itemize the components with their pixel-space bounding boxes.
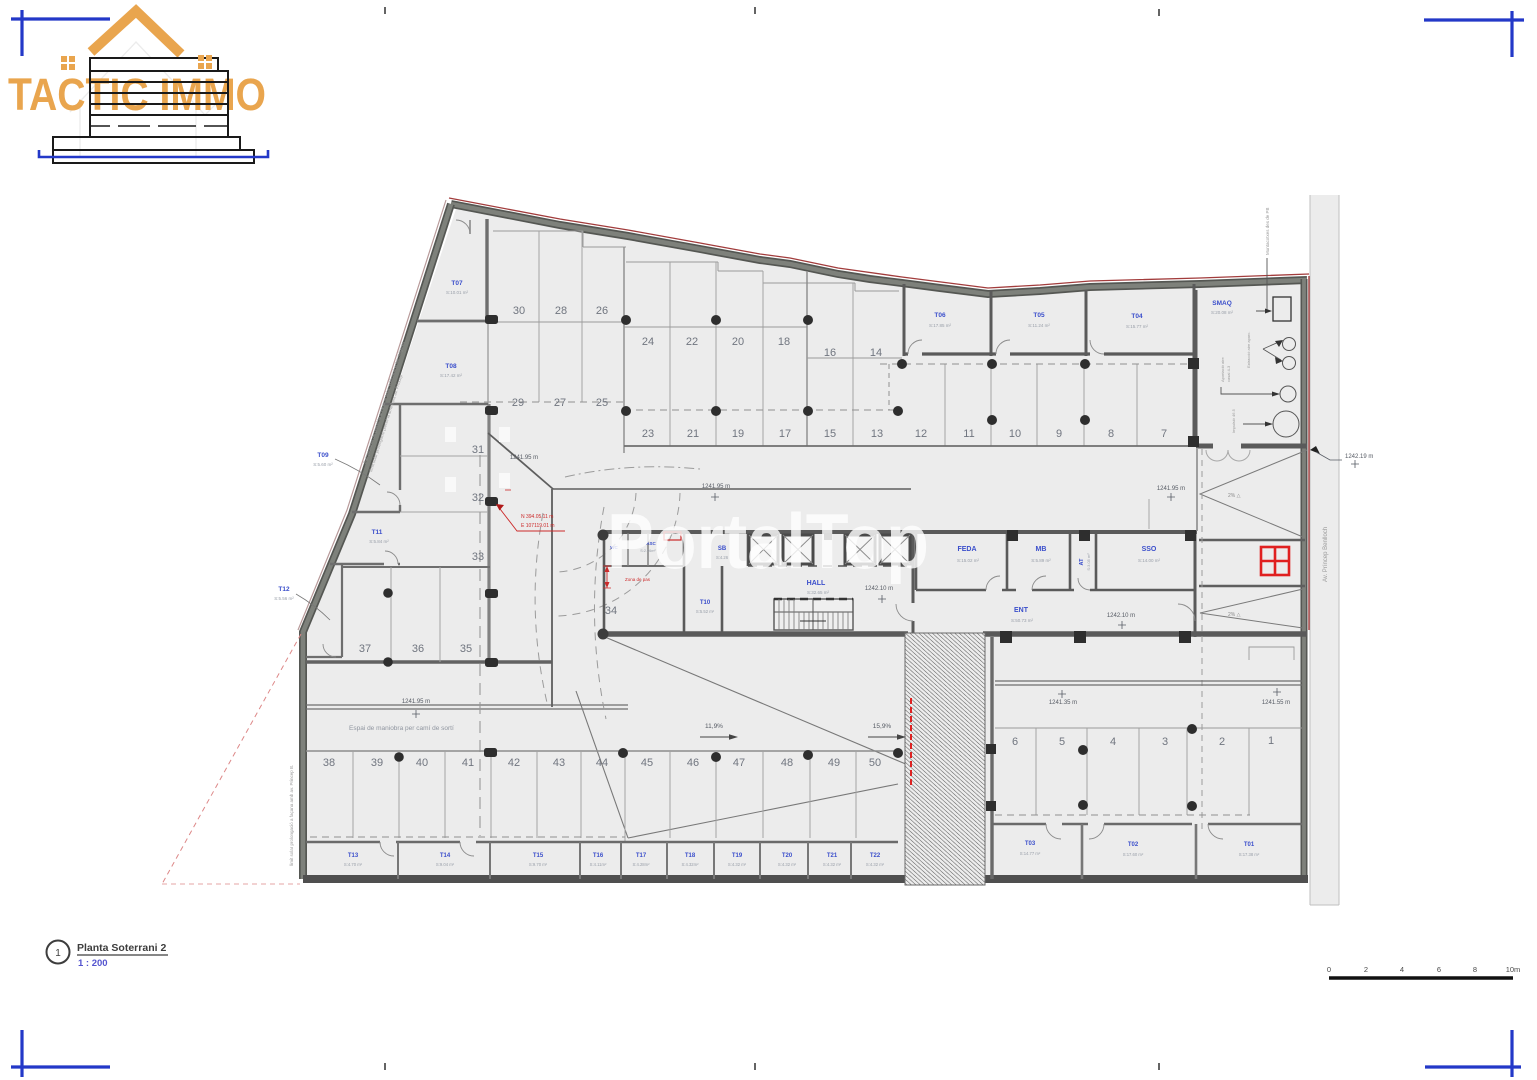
svg-text:50: 50 xyxy=(869,757,881,769)
svg-text:T12: T12 xyxy=(278,586,290,593)
svg-text:1242.10 m: 1242.10 m xyxy=(1107,613,1135,619)
svg-text:S:15.02 m²: S:15.02 m² xyxy=(957,558,980,563)
svg-text:S:5.60 m²: S:5.60 m² xyxy=(313,462,333,467)
svg-text:1242.10 m: 1242.10 m xyxy=(865,586,893,592)
svg-text:S:4.32 m²: S:4.32 m² xyxy=(778,862,797,867)
svg-text:Extracció aire aparc.: Extracció aire aparc. xyxy=(1246,332,1251,368)
svg-text:S:4.28m²: S:4.28m² xyxy=(633,862,651,867)
svg-text:1242.19 m: 1242.19 m xyxy=(1345,454,1373,460)
svg-text:1241.55 m: 1241.55 m xyxy=(1262,700,1290,706)
svg-text:Av. Príncep Benlloch: Av. Príncep Benlloch xyxy=(1323,527,1329,582)
svg-text:6: 6 xyxy=(1437,965,1441,974)
svg-text:S:4.32 m²: S:4.32 m² xyxy=(728,862,747,867)
svg-text:18: 18 xyxy=(778,336,790,348)
svg-text:43: 43 xyxy=(553,757,565,769)
svg-text:S:4.70 m²: S:4.70 m² xyxy=(344,862,363,867)
svg-text:Aportació aire: Aportació aire xyxy=(1220,357,1225,382)
svg-text:S:17.42 m²: S:17.42 m² xyxy=(440,373,463,378)
svg-text:1241.95 m: 1241.95 m xyxy=(702,484,730,490)
svg-text:9: 9 xyxy=(1056,428,1062,440)
svg-text:1241.95 m: 1241.95 m xyxy=(510,455,538,461)
svg-text:T16: T16 xyxy=(593,853,604,859)
svg-text:1241.35 m: 1241.35 m xyxy=(1049,700,1077,706)
svg-text:2: 2 xyxy=(1219,736,1225,748)
svg-text:15: 15 xyxy=(824,428,836,440)
svg-text:35: 35 xyxy=(460,643,472,655)
svg-text:S:5.56 m²: S:5.56 m² xyxy=(274,596,294,601)
svg-text:T01: T01 xyxy=(1244,842,1255,848)
svg-text:1: 1 xyxy=(55,948,61,959)
svg-text:48: 48 xyxy=(781,757,793,769)
svg-text:44: 44 xyxy=(596,757,608,769)
svg-text:1241.95 m: 1241.95 m xyxy=(402,699,430,705)
svg-text:S:3.05 m²: S:3.05 m² xyxy=(1086,553,1091,571)
svg-text:0: 0 xyxy=(1327,965,1331,974)
svg-text:PortalTop: PortalTop xyxy=(607,497,929,585)
svg-text:8: 8 xyxy=(1473,965,1477,974)
svg-text:T09: T09 xyxy=(317,452,329,459)
svg-text:2% △: 2% △ xyxy=(1228,612,1241,618)
svg-text:T04: T04 xyxy=(1131,313,1143,320)
svg-text:32: 32 xyxy=(472,492,484,504)
svg-text:20: 20 xyxy=(732,336,744,348)
svg-text:T13: T13 xyxy=(348,853,359,859)
svg-text:21: 21 xyxy=(687,428,699,440)
svg-text:2% △: 2% △ xyxy=(1228,493,1241,499)
svg-text:1: 1 xyxy=(1268,735,1274,747)
svg-text:14: 14 xyxy=(870,347,882,359)
svg-text:29: 29 xyxy=(512,397,524,409)
svg-text:Espai de maniobra per camí de: Espai de maniobra per camí de sortí xyxy=(349,725,454,732)
svg-text:SSO: SSO xyxy=(1142,546,1157,553)
svg-text:Impulsió 46.5: Impulsió 46.5 xyxy=(1231,408,1236,433)
svg-text:S:14.77 m²: S:14.77 m² xyxy=(1020,851,1041,856)
svg-text:19: 19 xyxy=(732,428,744,440)
svg-text:T06: T06 xyxy=(934,312,946,319)
svg-text:46: 46 xyxy=(687,757,699,769)
svg-text:33: 33 xyxy=(472,551,484,563)
svg-text:S:5.52 m²: S:5.52 m² xyxy=(696,609,715,614)
svg-text:T05: T05 xyxy=(1033,312,1045,319)
svg-text:S:11.24 m²: S:11.24 m² xyxy=(1028,323,1050,328)
svg-text:MB: MB xyxy=(1036,546,1047,553)
svg-text:E 107119.01 m: E 107119.01 m xyxy=(521,523,555,529)
svg-text:S:9.04 m²: S:9.04 m² xyxy=(436,862,455,867)
svg-text:ENT: ENT xyxy=(1014,607,1029,614)
svg-text:T17: T17 xyxy=(636,853,647,859)
svg-text:47: 47 xyxy=(733,757,745,769)
svg-text:3: 3 xyxy=(1162,736,1168,748)
svg-text:S:50.73 m²: S:50.73 m² xyxy=(1011,618,1034,623)
svg-text:T14: T14 xyxy=(440,853,451,859)
svg-text:42: 42 xyxy=(508,757,520,769)
svg-text:S:10.01 m²: S:10.01 m² xyxy=(446,290,469,295)
svg-text:11: 11 xyxy=(963,428,974,440)
svg-text:AT: AT xyxy=(1079,558,1085,566)
svg-text:39: 39 xyxy=(371,757,383,769)
svg-text:SMAQ: SMAQ xyxy=(1212,300,1232,307)
svg-text:34: 34 xyxy=(605,605,617,617)
svg-text:T02: T02 xyxy=(1128,842,1139,848)
svg-text:T11: T11 xyxy=(372,529,383,536)
svg-text:S:14.00 m²: S:14.00 m² xyxy=(1138,558,1161,563)
svg-text:S:5.89 m²: S:5.89 m² xyxy=(1031,558,1051,563)
svg-text:12: 12 xyxy=(915,428,927,440)
svg-text:S:17.38 m²: S:17.38 m² xyxy=(1239,852,1260,857)
svg-text:T10: T10 xyxy=(700,600,711,606)
svg-text:8: 8 xyxy=(1108,428,1114,440)
svg-text:16: 16 xyxy=(824,347,836,359)
svg-text:1241.95 m: 1241.95 m xyxy=(1157,486,1185,492)
svg-text:S:9.70 m²: S:9.70 m² xyxy=(529,862,548,867)
svg-text:11,9%: 11,9% xyxy=(705,723,723,730)
svg-text:S:15.77 m²: S:15.77 m² xyxy=(1126,324,1149,329)
svg-text:15,9%: 15,9% xyxy=(873,723,892,730)
svg-text:Planta Soterrani 2: Planta Soterrani 2 xyxy=(77,942,166,954)
svg-text:25: 25 xyxy=(596,397,608,409)
svg-text:S:17.85 m²: S:17.85 m² xyxy=(929,323,952,328)
svg-text:T08: T08 xyxy=(445,363,457,370)
svg-text:27: 27 xyxy=(554,397,566,409)
svg-text:7: 7 xyxy=(1161,428,1167,440)
svg-text:S:4.11m²: S:4.11m² xyxy=(590,862,607,867)
svg-text:2: 2 xyxy=(1364,965,1368,974)
svg-text:4: 4 xyxy=(1110,736,1116,748)
svg-text:5: 5 xyxy=(1059,736,1065,748)
svg-text:T20: T20 xyxy=(782,853,793,859)
svg-text:casal 4-3: casal 4-3 xyxy=(1226,365,1231,382)
svg-text:S:4.32 m²: S:4.32 m² xyxy=(866,862,885,867)
svg-text:T21: T21 xyxy=(827,853,838,859)
svg-text:17: 17 xyxy=(779,428,791,440)
svg-text:1 : 200: 1 : 200 xyxy=(78,958,108,969)
svg-text:S:20.08 m²: S:20.08 m² xyxy=(1211,310,1234,315)
svg-text:T03: T03 xyxy=(1025,841,1036,847)
svg-text:26: 26 xyxy=(596,305,608,317)
svg-text:38: 38 xyxy=(323,757,335,769)
svg-text:23: 23 xyxy=(642,428,654,440)
svg-text:28: 28 xyxy=(555,305,567,317)
svg-text:4: 4 xyxy=(1400,965,1404,974)
svg-text:T18: T18 xyxy=(685,853,696,859)
svg-text:10: 10 xyxy=(1009,428,1021,440)
svg-text:40: 40 xyxy=(416,757,428,769)
svg-text:6: 6 xyxy=(1012,736,1018,748)
svg-text:límit solar prolongació a faça: límit solar prolongació a façana amb av.… xyxy=(289,765,294,866)
svg-text:T07: T07 xyxy=(451,280,463,287)
svg-text:31: 31 xyxy=(472,444,484,456)
svg-text:Muntacotxes des de PB: Muntacotxes des de PB xyxy=(1265,207,1270,255)
svg-text:37: 37 xyxy=(359,643,371,655)
svg-text:45: 45 xyxy=(641,757,653,769)
svg-text:41: 41 xyxy=(462,757,474,769)
svg-text:10m: 10m xyxy=(1506,965,1521,974)
svg-text:36: 36 xyxy=(412,643,424,655)
svg-text:T15: T15 xyxy=(533,853,544,859)
svg-text:T19: T19 xyxy=(732,853,743,859)
svg-text:13: 13 xyxy=(871,428,883,440)
svg-text:S:4.32m²: S:4.32m² xyxy=(682,862,700,867)
svg-text:S:32.65 m²: S:32.65 m² xyxy=(807,590,830,595)
svg-text:FEDA: FEDA xyxy=(957,546,976,553)
svg-text:N 394.05.11 m: N 394.05.11 m xyxy=(521,514,553,520)
svg-text:S:17.60 m²: S:17.60 m² xyxy=(1123,852,1144,857)
svg-text:22: 22 xyxy=(686,336,698,348)
svg-text:24: 24 xyxy=(642,336,654,348)
svg-text:30: 30 xyxy=(513,305,525,317)
svg-text:49: 49 xyxy=(828,757,840,769)
svg-text:S:5.84 m²: S:5.84 m² xyxy=(369,539,389,544)
svg-text:S:4.32 m²: S:4.32 m² xyxy=(823,862,842,867)
svg-text:T22: T22 xyxy=(870,853,881,859)
